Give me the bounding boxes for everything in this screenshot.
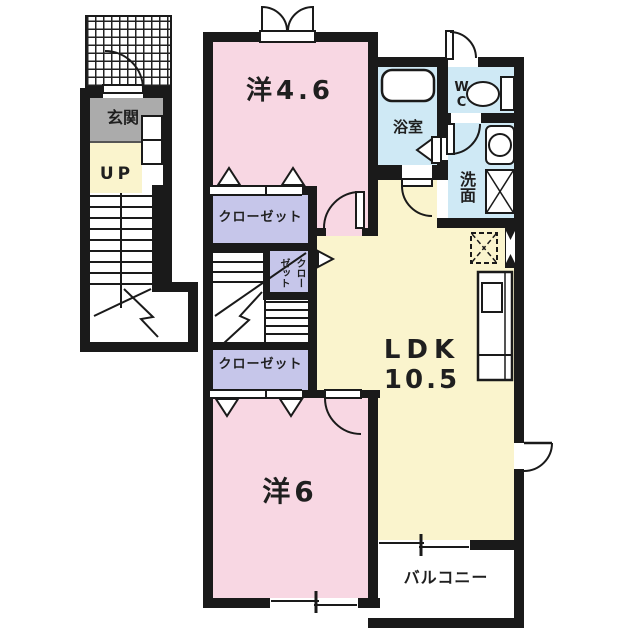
- closet1-door-divider: [265, 185, 267, 196]
- wall: [514, 469, 524, 540]
- wall: [263, 292, 317, 300]
- wall: [368, 618, 524, 628]
- floor-plan: 玄関 UP 洋4.6 クローゼット クローゼット 浴室 WC 洗面 LDK 10…: [0, 0, 640, 640]
- ldk-label: LDK: [378, 337, 466, 364]
- ldk-balcony-window: [378, 540, 470, 550]
- wall: [368, 32, 378, 67]
- room-bathroom: [378, 67, 437, 165]
- balcony-label: バルコニー: [394, 570, 498, 587]
- wall: [514, 548, 524, 628]
- wall: [163, 88, 172, 188]
- wall: [514, 57, 524, 443]
- closet1-sliding-doors: [210, 185, 302, 196]
- wall: [437, 218, 524, 228]
- closet2-label: クローゼット: [214, 358, 307, 372]
- wall: [362, 228, 378, 236]
- stairs-up-label: UP: [94, 166, 140, 184]
- entrance-label: 玄関: [96, 110, 150, 127]
- wall: [203, 32, 262, 42]
- closet-small-label: クローゼット: [273, 254, 307, 292]
- wall: [90, 88, 103, 98]
- room-ldk-b: [437, 228, 514, 236]
- room-bedroom1: [213, 42, 368, 186]
- wall: [203, 243, 317, 251]
- wall: [368, 67, 378, 236]
- wall: [358, 598, 380, 608]
- bedroom1-window-sill: [259, 30, 316, 43]
- wall: [80, 342, 198, 352]
- wall: [437, 57, 448, 138]
- washroom-label: 洗面: [452, 156, 474, 218]
- wall: [203, 390, 210, 398]
- entrance-porch-hatch: [85, 15, 172, 88]
- ldk-size-label: 10.5: [378, 367, 466, 394]
- wall: [368, 165, 402, 180]
- wall: [368, 390, 378, 608]
- stair-landing-floor: [90, 292, 188, 342]
- wall: [368, 540, 378, 550]
- room-ldk-a: [378, 180, 437, 236]
- wall: [80, 88, 90, 352]
- wall: [308, 390, 317, 398]
- service-door-icon: [514, 443, 552, 471]
- wall: [302, 390, 308, 398]
- bedroom2-window: [270, 598, 358, 608]
- wall: [308, 186, 317, 392]
- wall: [378, 57, 446, 67]
- wall: [481, 113, 514, 123]
- wall: [317, 390, 325, 398]
- wall: [203, 342, 317, 350]
- bedroom1-casement-window-icon: [262, 7, 313, 31]
- wall: [203, 186, 210, 195]
- closet1-label: クローゼット: [214, 211, 307, 225]
- wall: [152, 185, 172, 292]
- closet2-door-divider: [265, 389, 267, 399]
- wall: [302, 186, 308, 195]
- bedroom2-label: 洋6: [238, 477, 342, 506]
- bedroom1-label: 洋4.6: [220, 78, 360, 105]
- wall: [203, 598, 270, 608]
- bathroom-label: 浴室: [380, 120, 436, 136]
- wall: [203, 32, 213, 608]
- toilet-door-icon: [446, 31, 476, 59]
- closet2-sliding-doors: [210, 389, 302, 399]
- toilet-label: WC: [450, 72, 468, 118]
- wall: [432, 165, 448, 180]
- room-ldk-d: [378, 390, 514, 540]
